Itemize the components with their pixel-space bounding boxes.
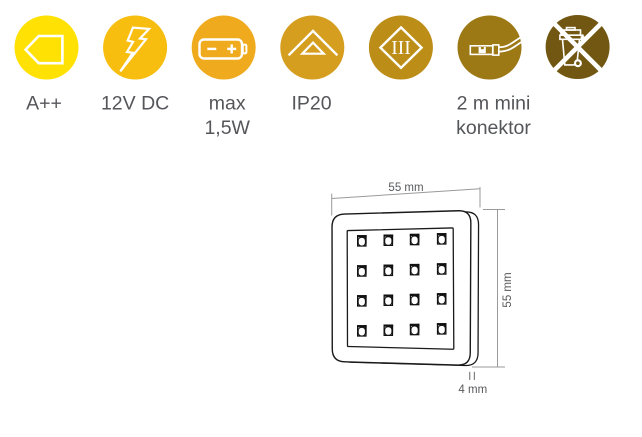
svg-text:55 mm: 55 mm	[388, 182, 423, 194]
svg-text:1,5W: 1,5W	[204, 117, 250, 139]
svg-text:A++: A++	[26, 93, 62, 115]
svg-text:IP20: IP20	[291, 93, 331, 115]
svg-text:12V DC: 12V DC	[101, 93, 169, 115]
svg-text:4 mm: 4 mm	[458, 384, 487, 396]
svg-text:III: III	[391, 38, 410, 59]
svg-text:55 mm: 55 mm	[502, 272, 514, 307]
svg-text:konektor: konektor	[456, 117, 531, 139]
svg-text:2 m mini: 2 m mini	[457, 93, 531, 115]
svg-text:max: max	[209, 93, 246, 115]
